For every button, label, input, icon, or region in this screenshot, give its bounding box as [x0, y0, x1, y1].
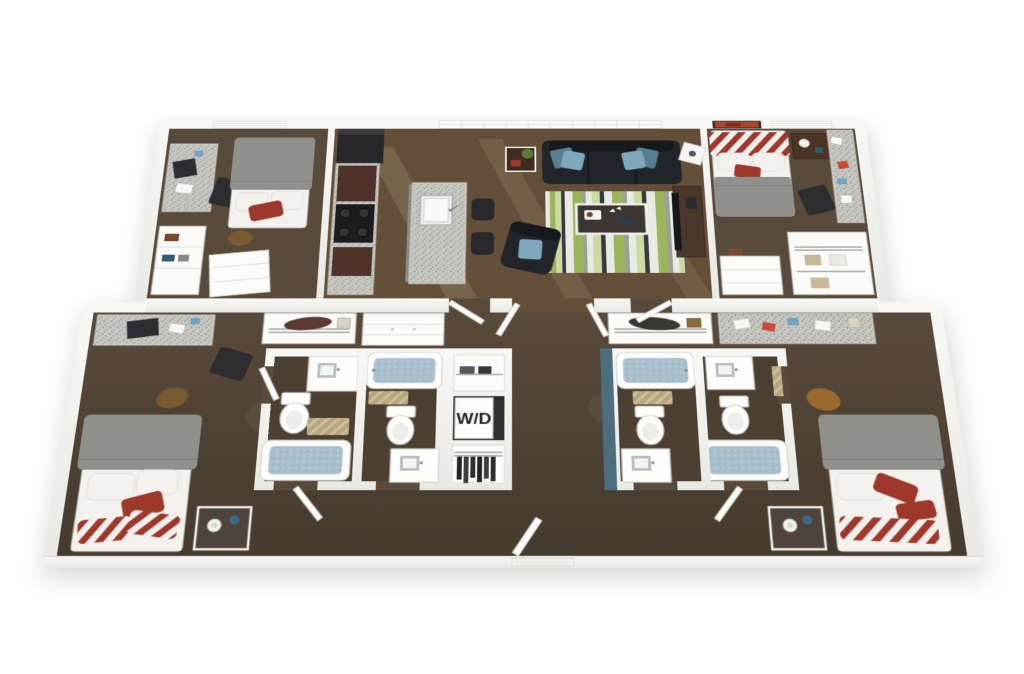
- skylight-bedroom-top-left: [213, 121, 286, 128]
- dresser: [362, 313, 444, 345]
- toilet: [279, 393, 311, 434]
- bar-stool: [471, 232, 494, 254]
- toilet: [635, 406, 665, 444]
- bathtub: [700, 440, 790, 480]
- floor-plan-svg: W/D: [42, 120, 982, 568]
- toilet: [385, 406, 415, 444]
- bath-mat: [633, 391, 673, 404]
- bathroom-block-left: [254, 348, 447, 490]
- nightstand: [769, 507, 826, 549]
- bathtub: [616, 352, 695, 388]
- shelf-closet: [151, 226, 206, 294]
- wire-closet: [262, 313, 356, 343]
- wall-art: [712, 121, 761, 129]
- stove: [334, 204, 375, 242]
- bed: [818, 415, 958, 552]
- bathtub: [366, 352, 442, 388]
- bed: [709, 131, 797, 216]
- nightstand: [194, 507, 251, 549]
- skylight-bedroom-top-right: [772, 121, 832, 128]
- media-console: [671, 186, 706, 257]
- bar-stool: [471, 198, 494, 220]
- laundry-closet: W/D: [444, 348, 512, 490]
- upper-cabinet: [336, 166, 377, 202]
- bed: [225, 138, 315, 228]
- side-table: [506, 147, 536, 171]
- coffee-table: [576, 204, 647, 233]
- desk: [93, 315, 215, 345]
- window-band: [439, 121, 661, 129]
- lower-cabinet: [331, 247, 372, 276]
- bath-mat: [368, 391, 408, 404]
- nightstand: [791, 134, 830, 159]
- floor-plan-3d-wrapper: W/D: [42, 120, 982, 568]
- bathtub: [260, 440, 352, 480]
- entry-threshold: [512, 558, 574, 566]
- desk: [718, 313, 876, 343]
- island-with-sink: [405, 183, 467, 284]
- bath-mat: [306, 418, 349, 435]
- wardrobe: [452, 445, 505, 483]
- plant: [521, 149, 533, 159]
- bathroom-block-right: [600, 348, 799, 490]
- shelf-closet: [454, 355, 505, 391]
- wire-closet: [608, 313, 713, 343]
- closet: [788, 232, 874, 294]
- bed: [65, 415, 203, 552]
- floor-plan-image: W/D: [0, 0, 1024, 674]
- front-wall: [42, 556, 982, 568]
- sofa: [542, 140, 682, 184]
- dresser: [205, 250, 274, 297]
- washer-dryer-label: W/D: [456, 410, 491, 428]
- washer-dryer: W/D: [453, 396, 505, 440]
